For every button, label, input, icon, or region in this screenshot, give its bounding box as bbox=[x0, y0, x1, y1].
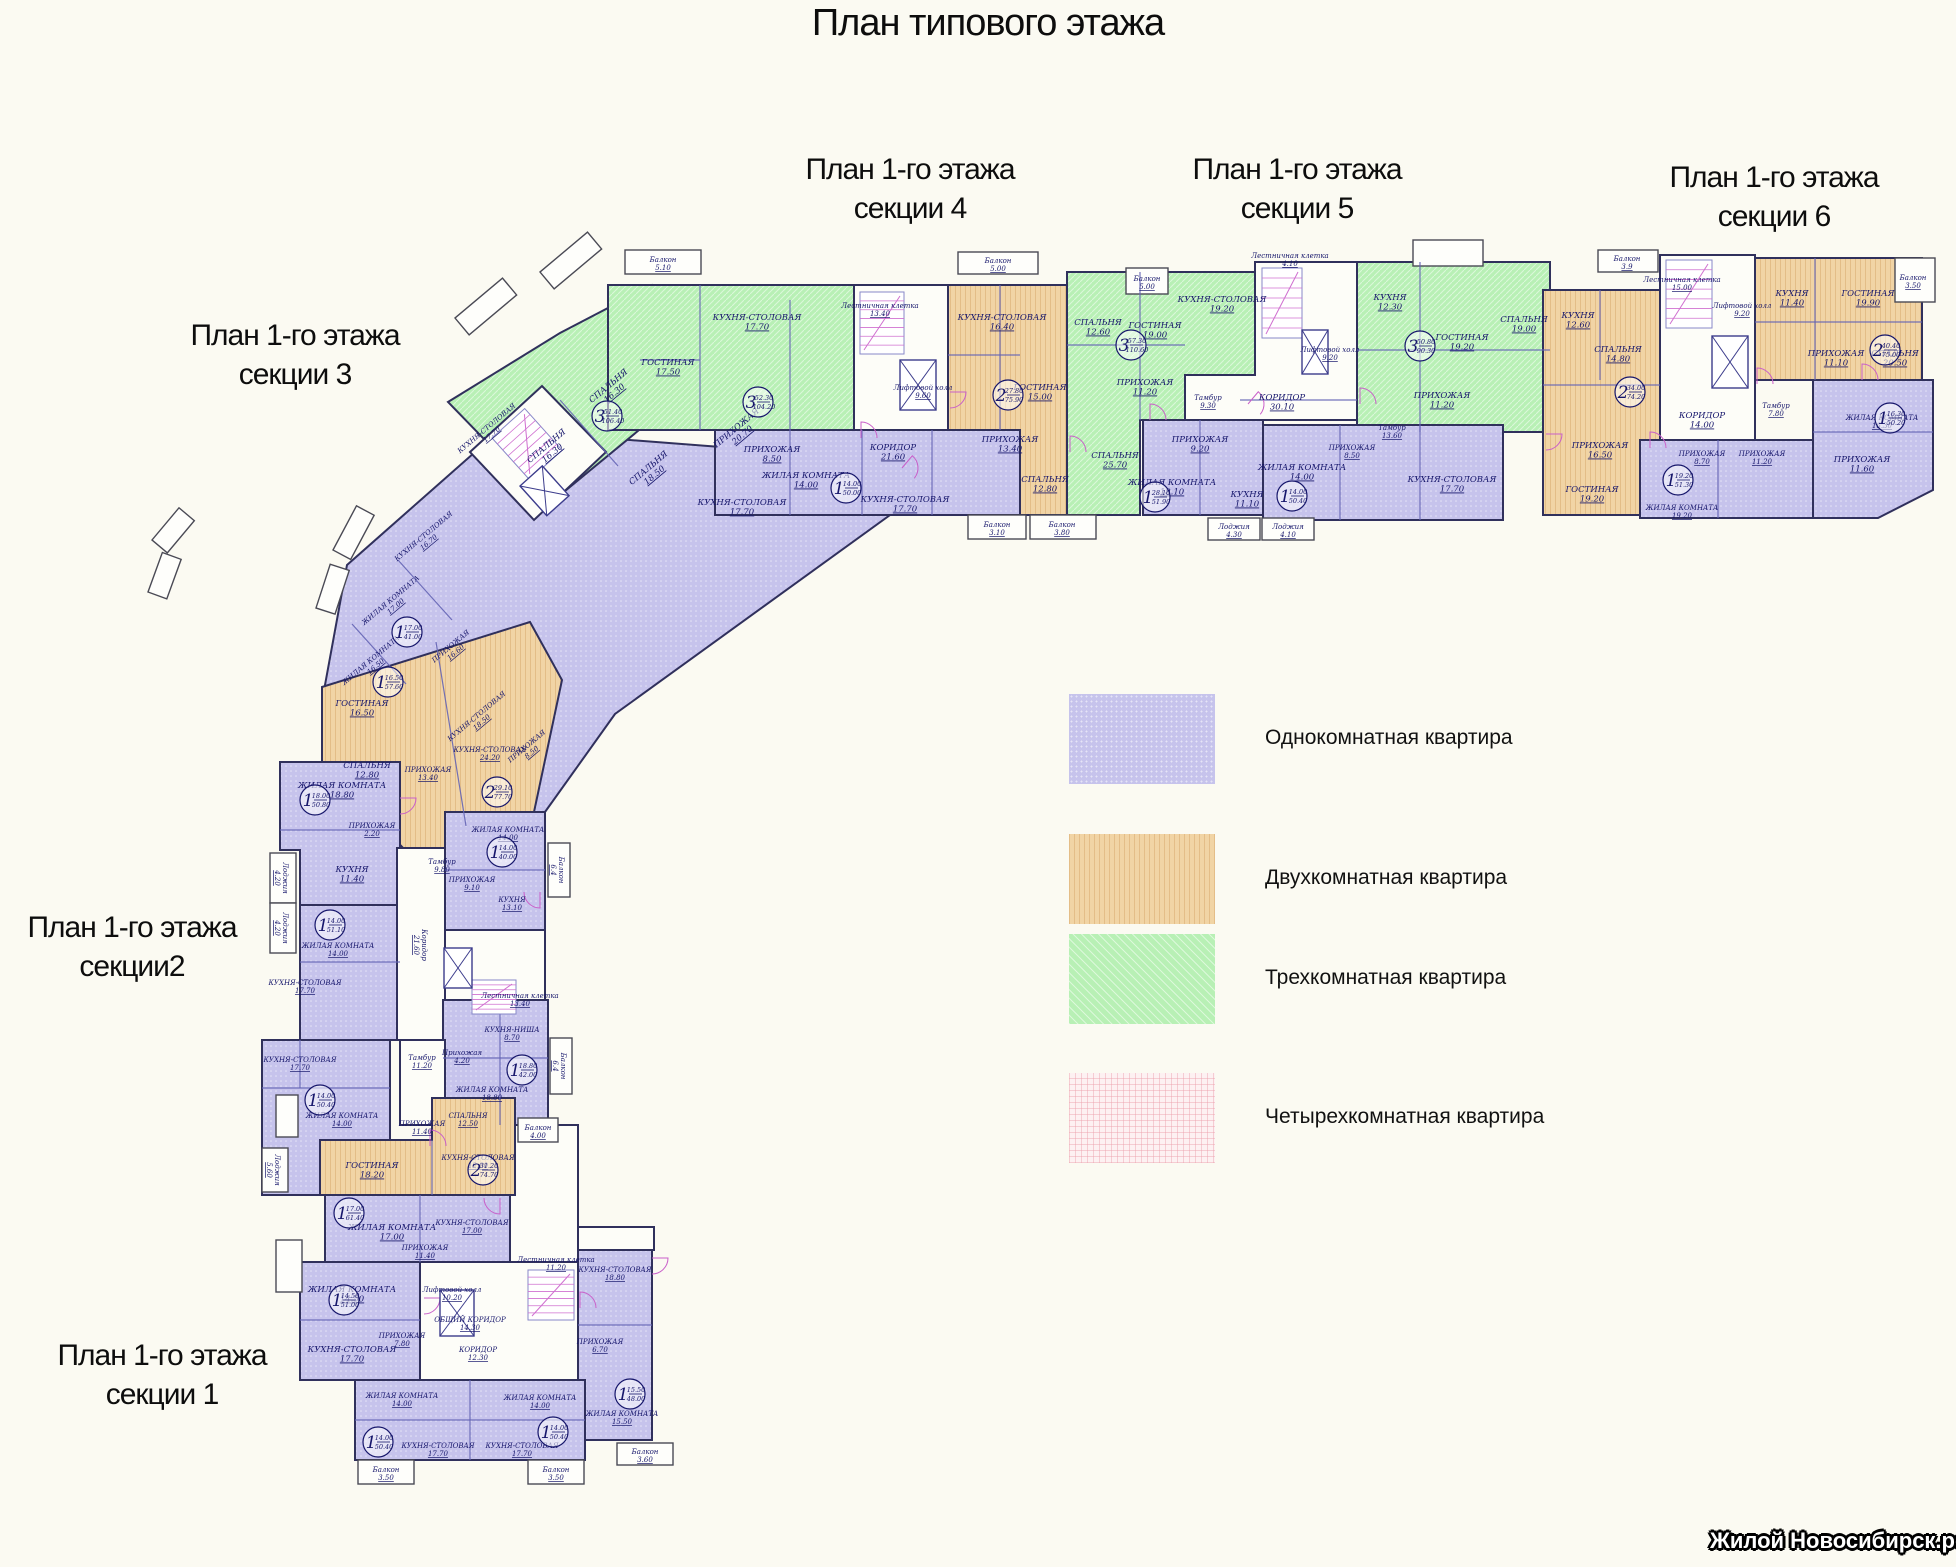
legend-swatch-4room bbox=[1069, 1073, 1215, 1163]
apartment-area-total: 61.40 bbox=[346, 1214, 365, 1222]
apartment-area-living: 14.00 bbox=[843, 480, 862, 488]
apartment-type-badge: 231.2074.70 bbox=[468, 1155, 498, 1185]
legend-swatch-2room bbox=[1069, 834, 1215, 924]
stairs-icon bbox=[1666, 260, 1712, 328]
floor-plan-page: { "title": "План типового этажа", "water… bbox=[0, 0, 1956, 1567]
apartment-type-badge: 114.0050.40 bbox=[363, 1427, 393, 1457]
apartment-area-total: 50.00 bbox=[843, 489, 862, 497]
apartment-area-total: 50.40 bbox=[550, 1433, 569, 1441]
apartment-area-total: 106.40 bbox=[602, 417, 625, 425]
legend-swatch-1room bbox=[1069, 694, 1215, 784]
apartment-area-total: 50.20 bbox=[1887, 419, 1906, 427]
stairs-icon bbox=[1262, 268, 1302, 338]
apartment-type-badge: 350.8090.30 bbox=[1405, 331, 1435, 361]
apartment-area-living: 40.40 bbox=[1881, 342, 1901, 350]
balcony bbox=[148, 553, 181, 599]
apartment-area-total: 42.00 bbox=[518, 1071, 538, 1079]
apartment-type-badge: 115.5048.00 bbox=[615, 1379, 645, 1409]
apartment-area-total: 50.40 bbox=[375, 1443, 394, 1451]
apartment-area-total: 57.60 bbox=[385, 683, 404, 691]
apartment-type-badge: 114.5051.00 bbox=[329, 1285, 359, 1315]
elevator-icon bbox=[444, 948, 472, 988]
apartment-area-total: 51.90 bbox=[1152, 498, 1171, 506]
room-label: Тамбур7.80 bbox=[1762, 402, 1790, 418]
apartment-area-living: 50.80 bbox=[1417, 338, 1436, 346]
apartment-type-badge: 114.0051.10 bbox=[315, 910, 345, 940]
room-label: КУХНЯ12.30 bbox=[1372, 293, 1406, 313]
apartment-area-living: 52.30 bbox=[755, 394, 774, 402]
apartment-area-living: 14.00 bbox=[317, 1092, 336, 1100]
apartment-area-total: 40.00 bbox=[498, 853, 518, 861]
apartment-area-total: 50.40 bbox=[1289, 497, 1308, 505]
apartment-area-total: 48.00 bbox=[626, 1395, 646, 1403]
apartment-area-total: 41.00 bbox=[403, 633, 423, 641]
apartment-type-badge: 240.4075.00 bbox=[1870, 335, 1900, 365]
apartment-area-living: 31.20 bbox=[480, 1162, 499, 1170]
common-area-block bbox=[578, 1227, 654, 1250]
room-label: КУХНЯ11.40 bbox=[334, 865, 368, 885]
apartment-area-living: 14.50 bbox=[341, 1292, 360, 1300]
apartment-type-badge: 117.0041.00 bbox=[392, 617, 422, 647]
balcony bbox=[455, 278, 517, 335]
apartment-area-living: 16.50 bbox=[385, 674, 404, 682]
room-label: КУХНЯ12.60 bbox=[1560, 311, 1594, 331]
apartment-type-badge: 118.0050.80 bbox=[300, 785, 330, 815]
apartment-area-total: 51.10 bbox=[327, 926, 346, 934]
apartment-area-living: 27.80 bbox=[1004, 387, 1024, 395]
elevator-icon bbox=[1712, 336, 1748, 388]
balcony bbox=[276, 1095, 298, 1137]
apartment-area-total: 75.00 bbox=[1882, 351, 1901, 359]
apartment-type-badge: 227.8075.90 bbox=[993, 380, 1023, 410]
balcony bbox=[540, 232, 602, 289]
apartment-area-living: 51.40 bbox=[604, 408, 623, 416]
apartment-type-badge: 114.0050.40 bbox=[1277, 481, 1307, 511]
apartment-area-total: 51.00 bbox=[341, 1301, 360, 1309]
apartment-type-badge: 119.2051.30 bbox=[1663, 465, 1693, 495]
room-label: КУХНЯ13.10 bbox=[497, 896, 526, 912]
apartment-area-living: 28.10 bbox=[1151, 489, 1171, 497]
apartment-area-total: 50.80 bbox=[312, 801, 331, 809]
apartment-area-total: 50.40 bbox=[317, 1101, 336, 1109]
watermark: Жилой Новосибирск.рф bbox=[1710, 1528, 1950, 1554]
apartment-area-living: 14.00 bbox=[1289, 488, 1308, 496]
apartment-area-total: 75.90 bbox=[1005, 396, 1024, 404]
legend-swatch-3room bbox=[1069, 934, 1215, 1024]
door-swing bbox=[652, 1258, 668, 1274]
stairs-icon bbox=[528, 1270, 574, 1320]
apartment-area-total: 51.30 bbox=[1675, 481, 1694, 489]
apartment-area-total: 104.20 bbox=[753, 403, 776, 411]
apartment-type-badge: 114.0050.00 bbox=[831, 473, 861, 503]
apartment-type-badge: 114.0040.00 bbox=[487, 837, 517, 867]
apartment-type-badge: 116.5057.60 bbox=[373, 667, 403, 697]
room-label: КУХНЯ11.10 bbox=[1229, 490, 1263, 510]
apartment-area-living: 19.20 bbox=[1675, 472, 1694, 480]
balcony bbox=[1413, 240, 1483, 266]
room-label: КУХНЯ11.40 bbox=[1774, 289, 1808, 309]
apartment-type-badge: 117.0061.40 bbox=[334, 1198, 364, 1228]
common-area-block bbox=[510, 1125, 578, 1262]
apartment-area-living: 17.00 bbox=[404, 624, 423, 632]
apartment-area-living: 14.00 bbox=[327, 917, 346, 925]
apartment-type-badge: 128.1051.90 bbox=[1140, 482, 1170, 512]
apartment-type-badge: 116.3050.20 bbox=[1875, 403, 1905, 433]
balcony bbox=[152, 508, 194, 553]
apartment-area-living: 17.00 bbox=[346, 1205, 365, 1213]
floor-plan: КУХНЯ-СТОЛОВАЯ17.70ГОСТИНАЯ17.50Лестничн… bbox=[0, 0, 1956, 1567]
apartment-area-living: 15.50 bbox=[627, 1386, 646, 1394]
apartment-area-living: 18.80 bbox=[519, 1062, 538, 1070]
apartment-block-1room bbox=[1813, 380, 1933, 518]
apartment-type-badge: 114.0050.40 bbox=[538, 1417, 568, 1447]
apartment-area-living: 16.30 bbox=[1887, 410, 1906, 418]
apartment-area-living: 57.30 bbox=[1128, 337, 1147, 345]
apartment-type-badge: 118.8042.00 bbox=[507, 1055, 537, 1085]
apartment-area-living: 14.00 bbox=[375, 1434, 394, 1442]
apartment-area-living: 29.10 bbox=[493, 784, 513, 792]
apartment-area-living: 14.00 bbox=[499, 844, 518, 852]
apartment-area-living: 34.00 bbox=[1627, 384, 1646, 392]
apartment-area-total: 90.30 bbox=[1417, 347, 1436, 355]
apartment-type-badge: 234.0074.20 bbox=[1615, 377, 1645, 407]
apartment-area-total: 77.70 bbox=[494, 793, 513, 801]
apartment-area-total: 74.70 bbox=[480, 1171, 499, 1179]
apartment-area-living: 14.00 bbox=[550, 1424, 569, 1432]
apartment-area-living: 18.00 bbox=[312, 792, 331, 800]
balcony bbox=[276, 1240, 302, 1292]
apartment-type-badge: 114.0050.40 bbox=[305, 1085, 335, 1115]
apartment-type-badge: 229.1077.70 bbox=[482, 777, 512, 807]
apartment-area-total: 74.20 bbox=[1627, 393, 1646, 401]
apartment-area-total: 110.60 bbox=[1126, 346, 1149, 354]
